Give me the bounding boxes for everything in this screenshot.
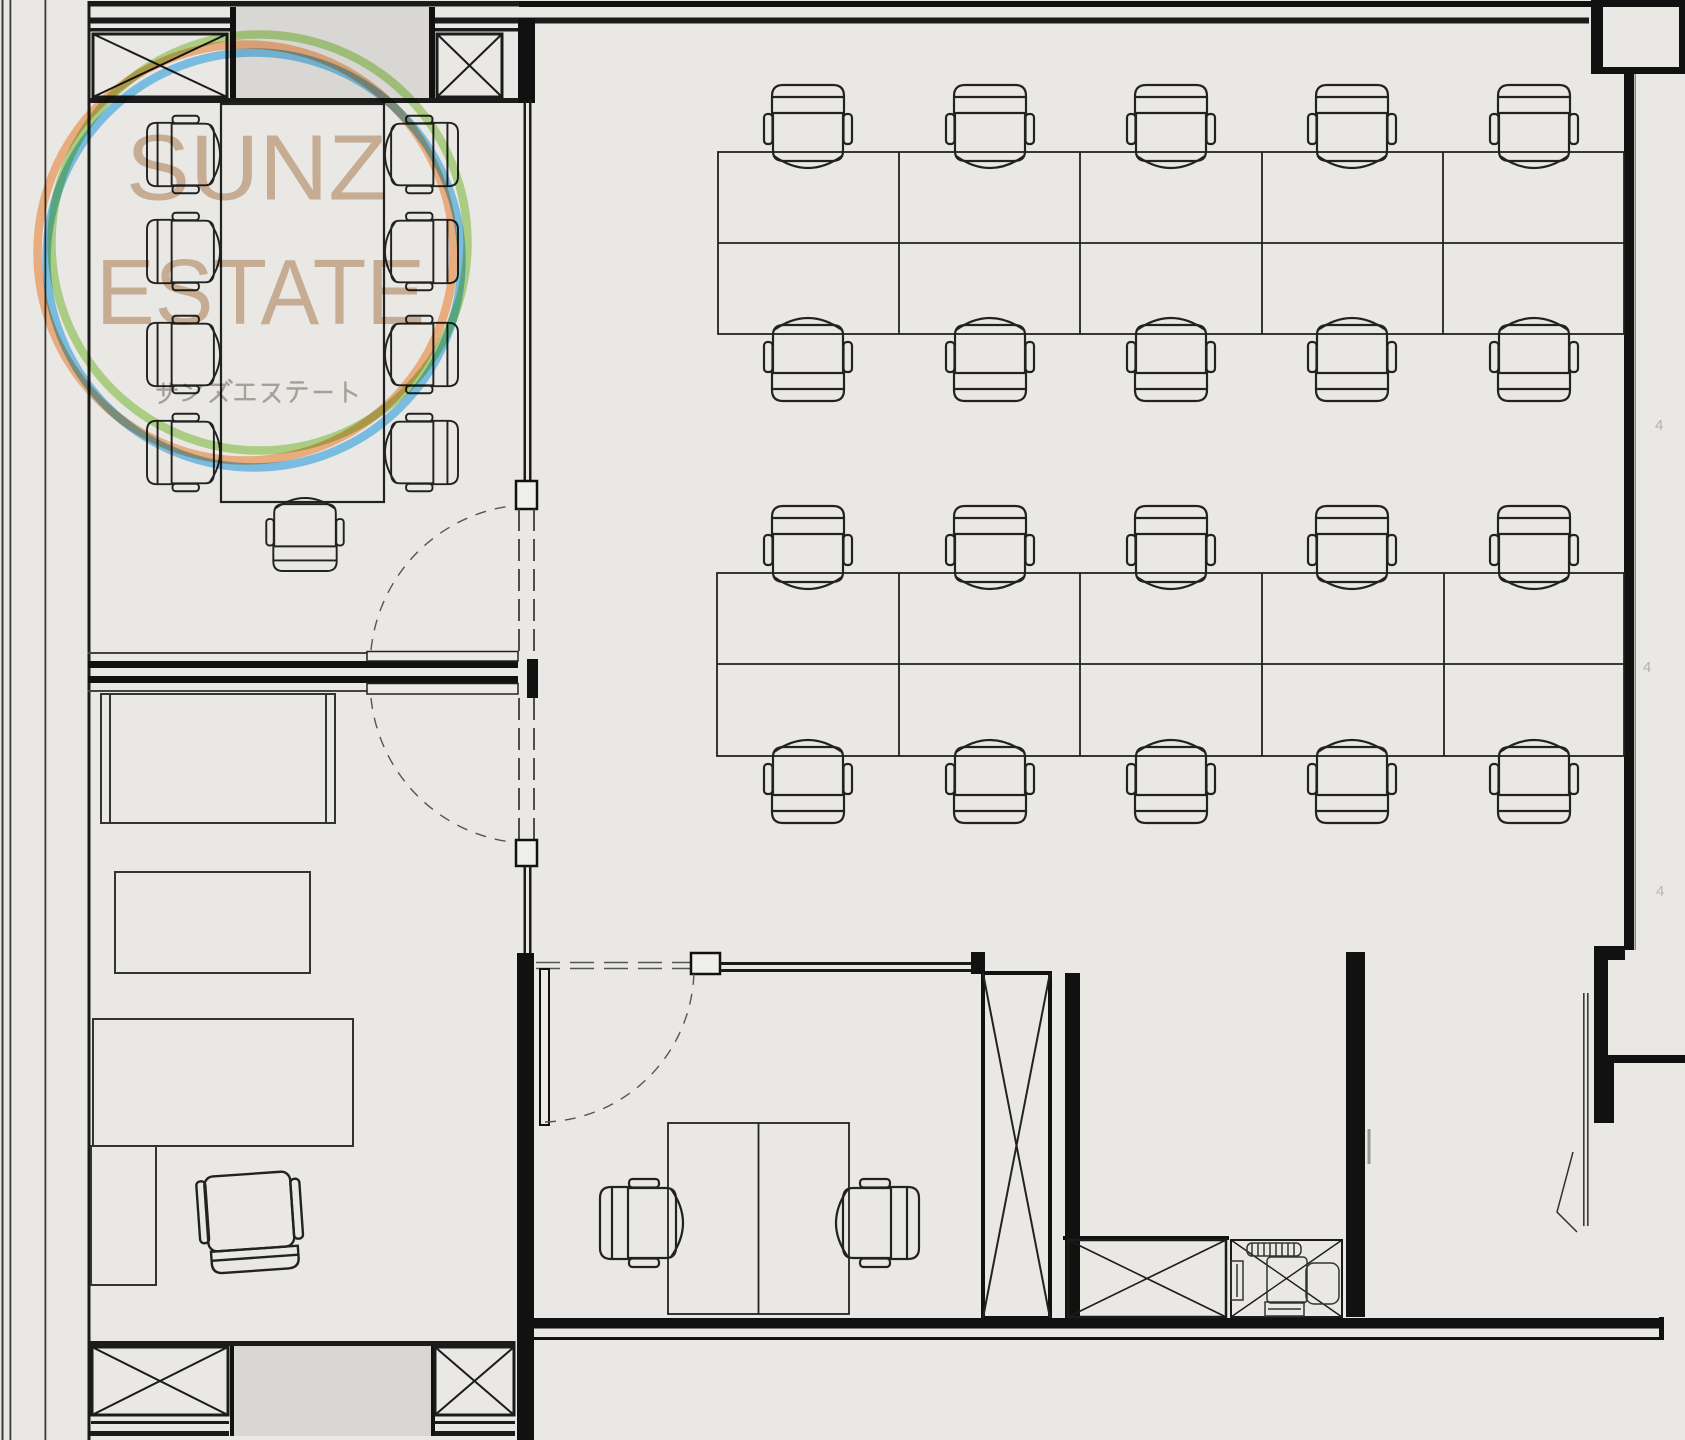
svg-text:4: 4: [1643, 659, 1651, 676]
svg-text:ESTATE: ESTATE: [96, 240, 425, 344]
svg-text:4: 4: [1656, 883, 1664, 900]
svg-text:SUNZ: SUNZ: [126, 116, 387, 220]
svg-text:4: 4: [1655, 417, 1663, 434]
